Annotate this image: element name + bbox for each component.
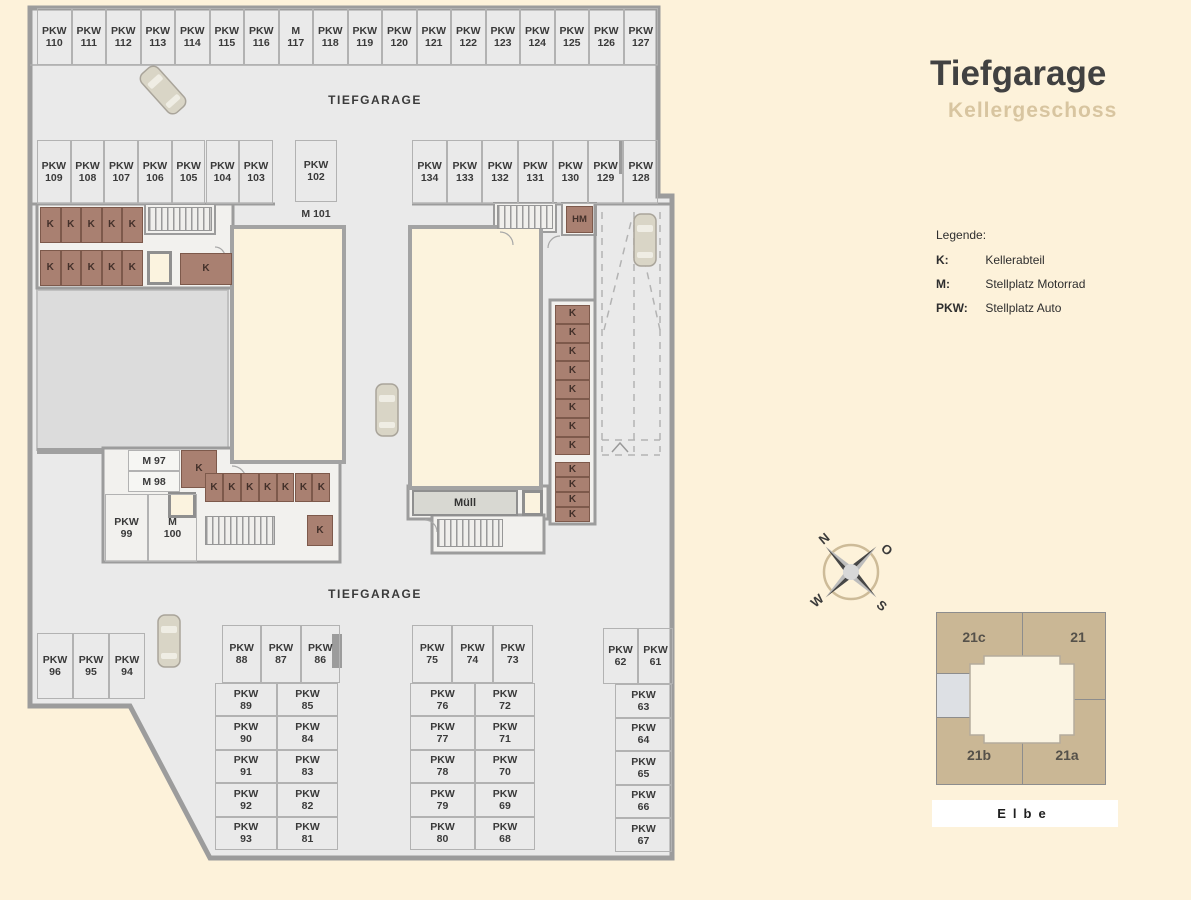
storage-cell: K (312, 473, 330, 502)
parking-spot: PKW128 (623, 140, 658, 204)
site-map: 21c 21 21b 21a (936, 612, 1106, 785)
legend-value: Kellerabteil (985, 253, 1044, 267)
staircase (437, 519, 503, 547)
parking-spot: PKW92 (215, 783, 277, 816)
site-building-21c: 21c (949, 629, 999, 645)
floor-plan-canvas: N O W S TIEFGARAGE TIEFGARAGE PKW110PKW1… (0, 0, 1191, 900)
parking-spot: PKW123 (486, 8, 521, 65)
site-building-21: 21 (1053, 629, 1103, 645)
parking-spot: PKW89 (215, 683, 277, 716)
parking-spot: PKW63 (615, 684, 672, 718)
parking-spot: PKW126 (589, 8, 624, 65)
parking-spot: PKW88 (222, 625, 261, 683)
storage-cell: K (307, 515, 333, 546)
waste-room: Müll (412, 490, 518, 516)
storage-cell: K (555, 477, 590, 492)
parking-spot: PKW72 (475, 683, 535, 716)
staircase (148, 207, 212, 231)
parking-spot: PKW113 (141, 8, 176, 65)
parking-spot: PKW94 (109, 633, 145, 699)
storage-cell: K (61, 207, 82, 243)
elevator (147, 251, 172, 285)
parking-spot: PKW107 (104, 140, 138, 204)
storage-cell: K (555, 380, 590, 399)
legend-item: M: Stellplatz Motorrad (936, 277, 1085, 291)
parking-spot: PKW73 (493, 625, 533, 683)
legend-item: PKW: Stellplatz Auto (936, 301, 1085, 315)
storage-cell: K (180, 253, 232, 285)
plan-label: M 101 (290, 206, 342, 222)
parking-spot: PKW121 (417, 8, 452, 65)
parking-spot: PKW75 (412, 625, 452, 683)
parking-spot: PKW67 (615, 818, 672, 852)
parking-spot: PKW95 (73, 633, 109, 699)
parking-spot: PKW81 (277, 817, 338, 850)
storage-cell: K (259, 473, 277, 502)
parking-spot: M100 (148, 494, 197, 562)
site-building-21a: 21a (1042, 747, 1092, 763)
page-subtitle: Kellergeschoss (948, 99, 1117, 123)
storage-cell: K (555, 507, 590, 522)
parking-spot: PKW112 (106, 8, 141, 65)
storage-cell: K (223, 473, 241, 502)
parking-spot: PKW129 (588, 140, 623, 204)
parking-spot: PKW78 (410, 750, 475, 783)
parking-spot: PKW93 (215, 817, 277, 850)
parking-spot: PKW132 (482, 140, 517, 204)
storage-cell: K (102, 250, 123, 286)
parking-spot: PKW61 (638, 628, 673, 684)
storage-cell: K (555, 361, 590, 380)
parking-spot: PKW125 (555, 8, 590, 65)
garage-area-label-top: TIEFGARAGE (320, 93, 430, 107)
staircase (205, 516, 275, 545)
legend-heading: Legende: (936, 228, 1085, 242)
parking-spot: PKW120 (382, 8, 417, 65)
parking-spot: PKW87 (261, 625, 300, 683)
storage-cell: K (555, 437, 590, 456)
page-title: Tiefgarage (930, 54, 1106, 94)
storage-cell: K (122, 207, 143, 243)
legend-key: M: (936, 277, 982, 291)
staircase (497, 205, 553, 229)
legend-value: Stellplatz Auto (985, 301, 1061, 315)
parking-spot: PKW108 (71, 140, 105, 204)
parking-spot: PKW71 (475, 716, 535, 749)
parking-spot: PKW127 (624, 8, 659, 65)
storage-cell: K (205, 473, 223, 502)
parking-spot: PKW106 (138, 140, 172, 204)
parking-spot: PKW111 (72, 8, 107, 65)
parking-spot: PKW85 (277, 683, 338, 716)
storage-cell: K (102, 207, 123, 243)
storage-cell: K (40, 250, 61, 286)
storage-cell: K (241, 473, 259, 502)
legend-item: K: Kellerabteil (936, 253, 1085, 267)
storage-cell: K (555, 324, 590, 343)
parking-spot: PKW109 (37, 140, 71, 204)
parking-spot: PKW64 (615, 718, 672, 752)
parking-spot: PKW133 (447, 140, 482, 204)
storage-cell: K (555, 305, 590, 324)
parking-spot: M 98 (128, 471, 180, 492)
parking-spot: PKW79 (410, 783, 475, 816)
legend-key: PKW: (936, 301, 982, 315)
parking-spot: PKW115 (210, 8, 245, 65)
parking-spot: PKW83 (277, 750, 338, 783)
river-label: Elbe (932, 800, 1118, 827)
parking-spot: PKW80 (410, 817, 475, 850)
storage-cell: K (81, 207, 102, 243)
parking-spot: PKW119 (348, 8, 383, 65)
parking-spot: PKW122 (451, 8, 486, 65)
legend-key: K: (936, 253, 982, 267)
parking-spot: PKW66 (615, 785, 672, 819)
parking-spot: PKW74 (452, 625, 492, 683)
parking-spot: PKW76 (410, 683, 475, 716)
parking-spot: PKW99 (105, 494, 148, 562)
storage-cell: K (277, 473, 295, 502)
parking-spot: PKW103 (239, 140, 273, 204)
storage-cell: K (555, 492, 590, 507)
parking-spot: PKW65 (615, 751, 672, 785)
parking-spot: PKW62 (603, 628, 638, 684)
storage-cell: K (122, 250, 143, 286)
parking-spot: PKW104 (206, 140, 240, 204)
parking-spot: PKW69 (475, 783, 535, 816)
garage-area-label-bottom: TIEFGARAGE (320, 587, 430, 601)
parking-spot: M 97 (128, 450, 180, 471)
storage-cell: K (295, 473, 313, 502)
parking-spot: PKW124 (520, 8, 555, 65)
storage-cell: K (555, 343, 590, 362)
parking-spot: PKW116 (244, 8, 279, 65)
parking-spot: PKW131 (518, 140, 553, 204)
parking-spot: PKW134 (412, 140, 447, 204)
parking-spot: PKW84 (277, 716, 338, 749)
parking-spot: PKW68 (475, 817, 535, 850)
legend: Legende: K: Kellerabteil M: Stellplatz M… (936, 228, 1085, 325)
site-building-21b: 21b (954, 747, 1004, 763)
parking-spot: PKW114 (175, 8, 210, 65)
parking-spot: M117 (279, 8, 314, 65)
hm-cell: HM (566, 206, 593, 233)
storage-cell: K (555, 462, 590, 477)
parking-spot: PKW86 (301, 625, 340, 683)
storage-cell: K (555, 418, 590, 437)
parking-spot: PKW82 (277, 783, 338, 816)
parking-spot: PKW96 (37, 633, 73, 699)
elevator (522, 490, 543, 516)
parking-spot: PKW110 (37, 8, 72, 65)
parking-spot: PKW70 (475, 750, 535, 783)
parking-spot: PKW105 (172, 140, 206, 204)
storage-cell: K (40, 207, 61, 243)
storage-cell: K (81, 250, 102, 286)
parking-spot: PKW90 (215, 716, 277, 749)
legend-value: Stellplatz Motorrad (985, 277, 1085, 291)
storage-cell: K (555, 399, 590, 418)
parking-spot: PKW77 (410, 716, 475, 749)
parking-spot: PKW130 (553, 140, 588, 204)
parking-spot: PKW102 (295, 140, 337, 202)
storage-cell: K (61, 250, 82, 286)
parking-spot: PKW118 (313, 8, 348, 65)
parking-spot: PKW91 (215, 750, 277, 783)
